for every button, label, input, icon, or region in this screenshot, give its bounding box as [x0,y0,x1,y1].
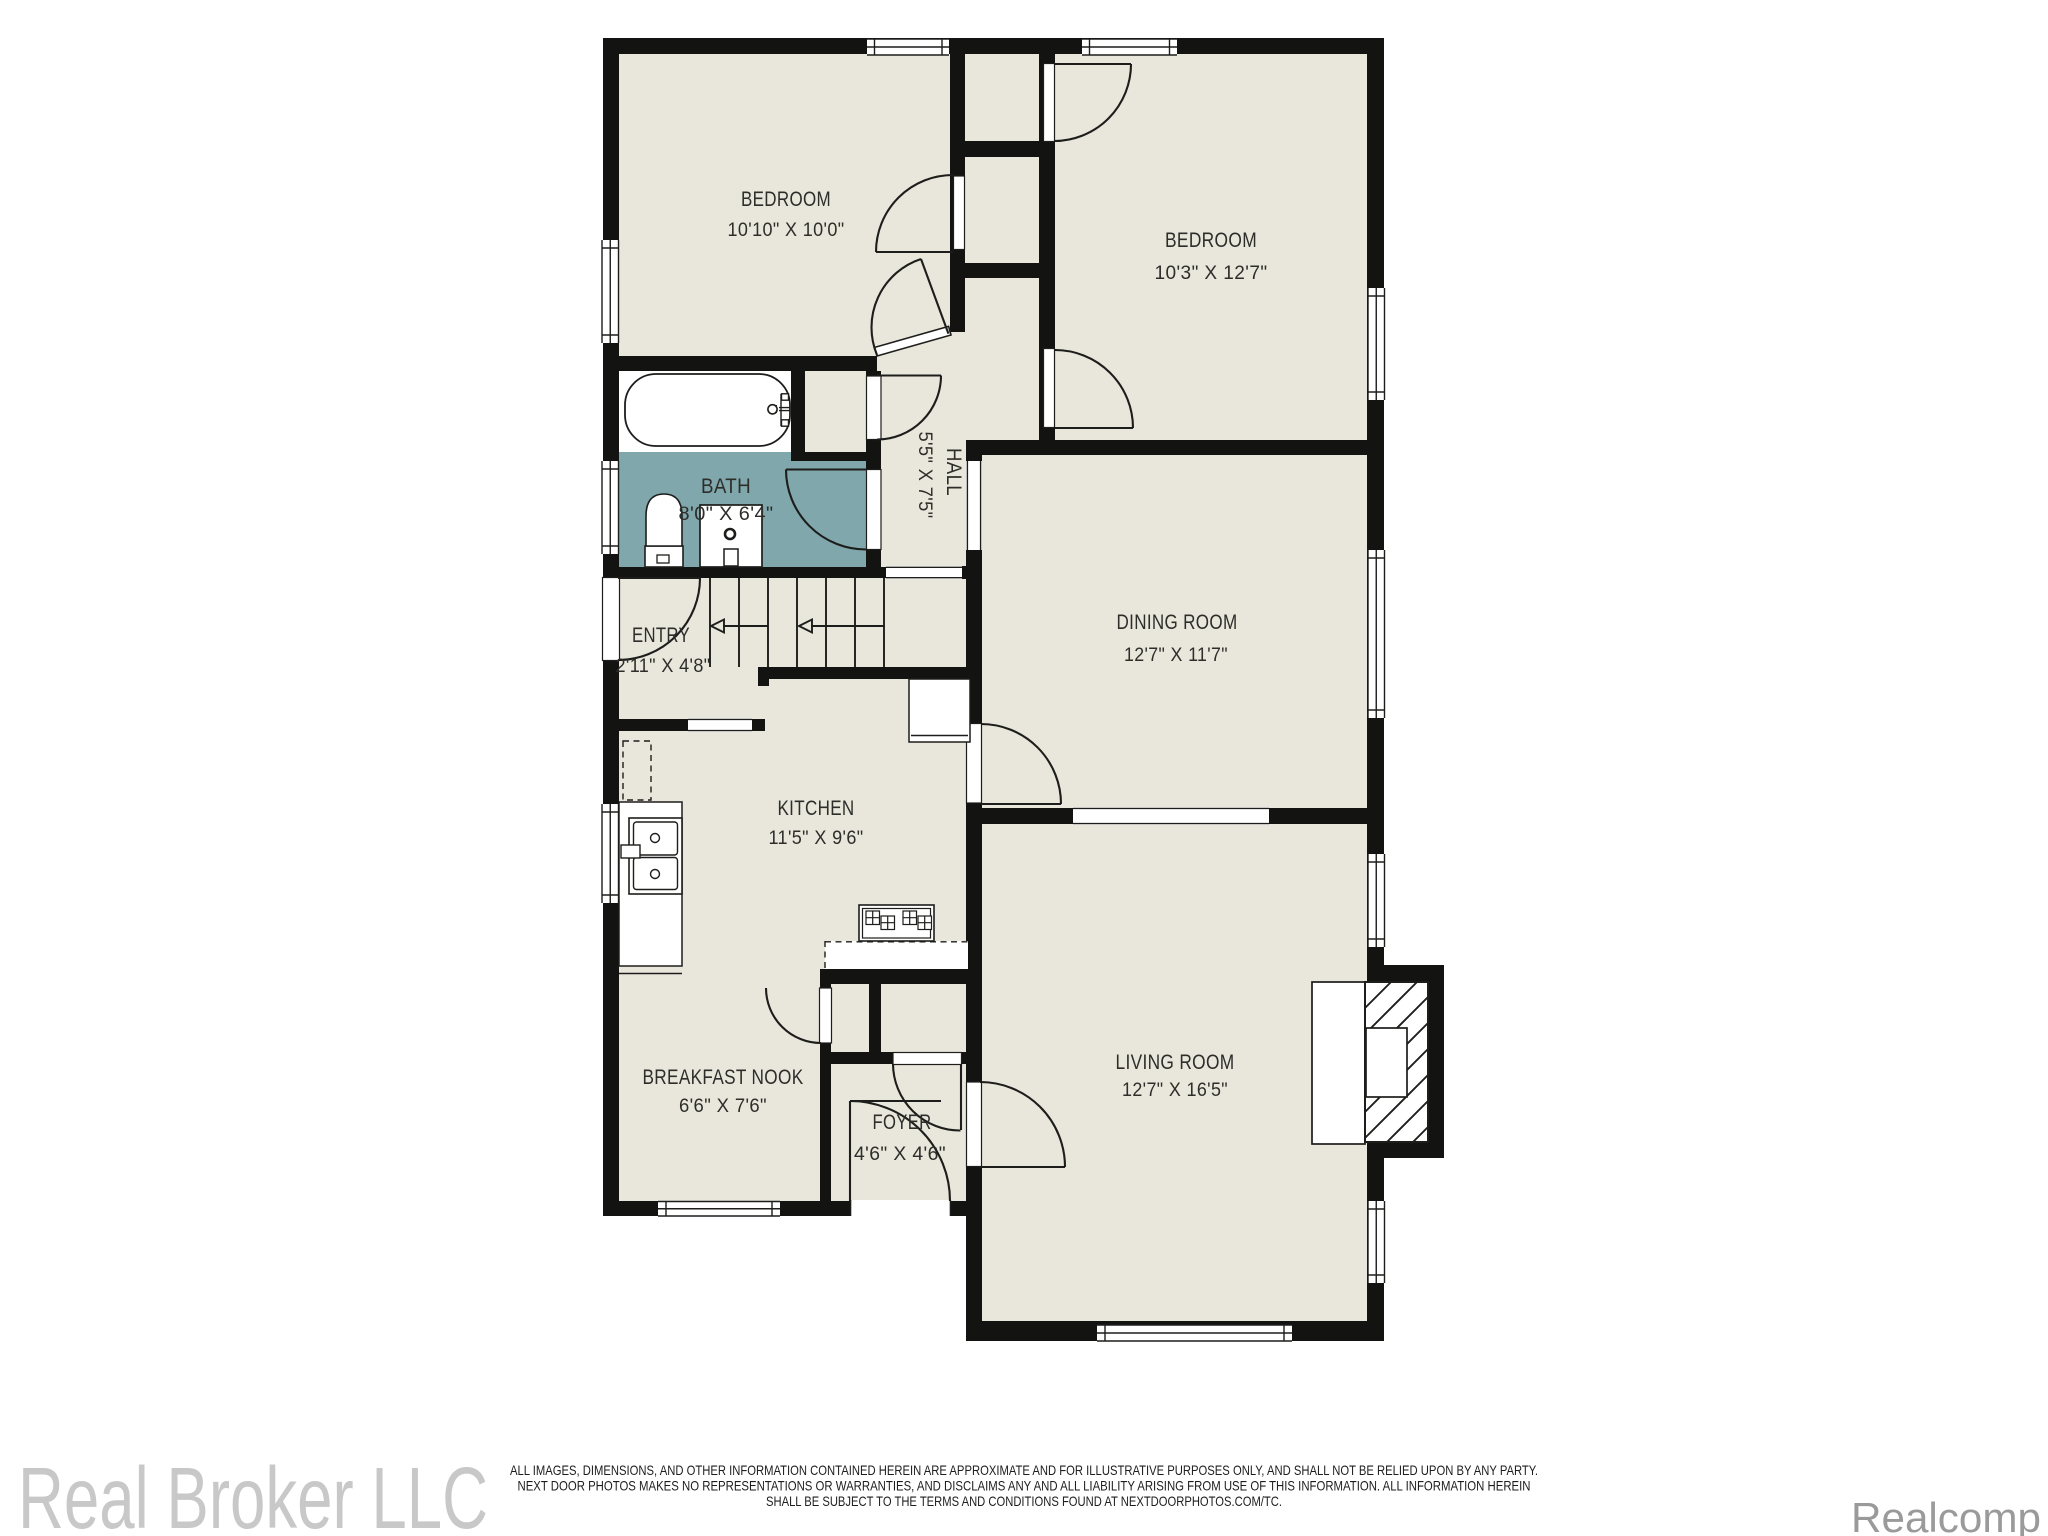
svg-text:Realcomp: Realcomp [1851,1494,2041,1536]
svg-text:4'6" X 4'6": 4'6" X 4'6" [854,1143,946,1165]
svg-text:DINING ROOM: DINING ROOM [1117,611,1238,634]
svg-text:10'10" X 10'0": 10'10" X 10'0" [728,219,845,241]
svg-text:SHALL BE SUBJECT TO THE TERMS: SHALL BE SUBJECT TO THE TERMS AND CONDIT… [766,1493,1282,1509]
svg-text:BATH: BATH [701,475,751,498]
svg-text:10'3" X 12'7": 10'3" X 12'7" [1155,262,1268,284]
svg-text:11'5" X 9'6": 11'5" X 9'6" [769,827,864,849]
svg-text:BEDROOM: BEDROOM [741,188,831,211]
svg-text:LIVING ROOM: LIVING ROOM [1116,1051,1235,1074]
svg-text:6'6" X 7'6": 6'6" X 7'6" [679,1095,767,1117]
svg-text:12'7" X 11'7": 12'7" X 11'7" [1124,644,1228,666]
svg-text:NEXT DOOR PHOTOS MAKES NO REPR: NEXT DOOR PHOTOS MAKES NO REPRESENTATION… [518,1478,1531,1494]
svg-text:2'11" X 4'8": 2'11" X 4'8" [616,655,711,677]
svg-text:FOYER: FOYER [873,1111,932,1134]
svg-text:5'5" X 7'5": 5'5" X 7'5" [914,432,936,519]
svg-text:KITCHEN: KITCHEN [778,797,855,820]
svg-text:BEDROOM: BEDROOM [1165,229,1257,252]
svg-text:ENTRY: ENTRY [632,624,690,647]
svg-text:8'0" X 6'4": 8'0" X 6'4" [679,503,774,525]
svg-text:12'7" X 16'5": 12'7" X 16'5" [1122,1079,1228,1101]
svg-text:BREAKFAST NOOK: BREAKFAST NOOK [643,1066,804,1089]
svg-text:HALL: HALL [942,448,965,496]
svg-text:Real Broker LLC: Real Broker LLC [18,1450,488,1536]
svg-text:ALL IMAGES, DIMENSIONS, AND OT: ALL IMAGES, DIMENSIONS, AND OTHER INFORM… [510,1462,1538,1478]
